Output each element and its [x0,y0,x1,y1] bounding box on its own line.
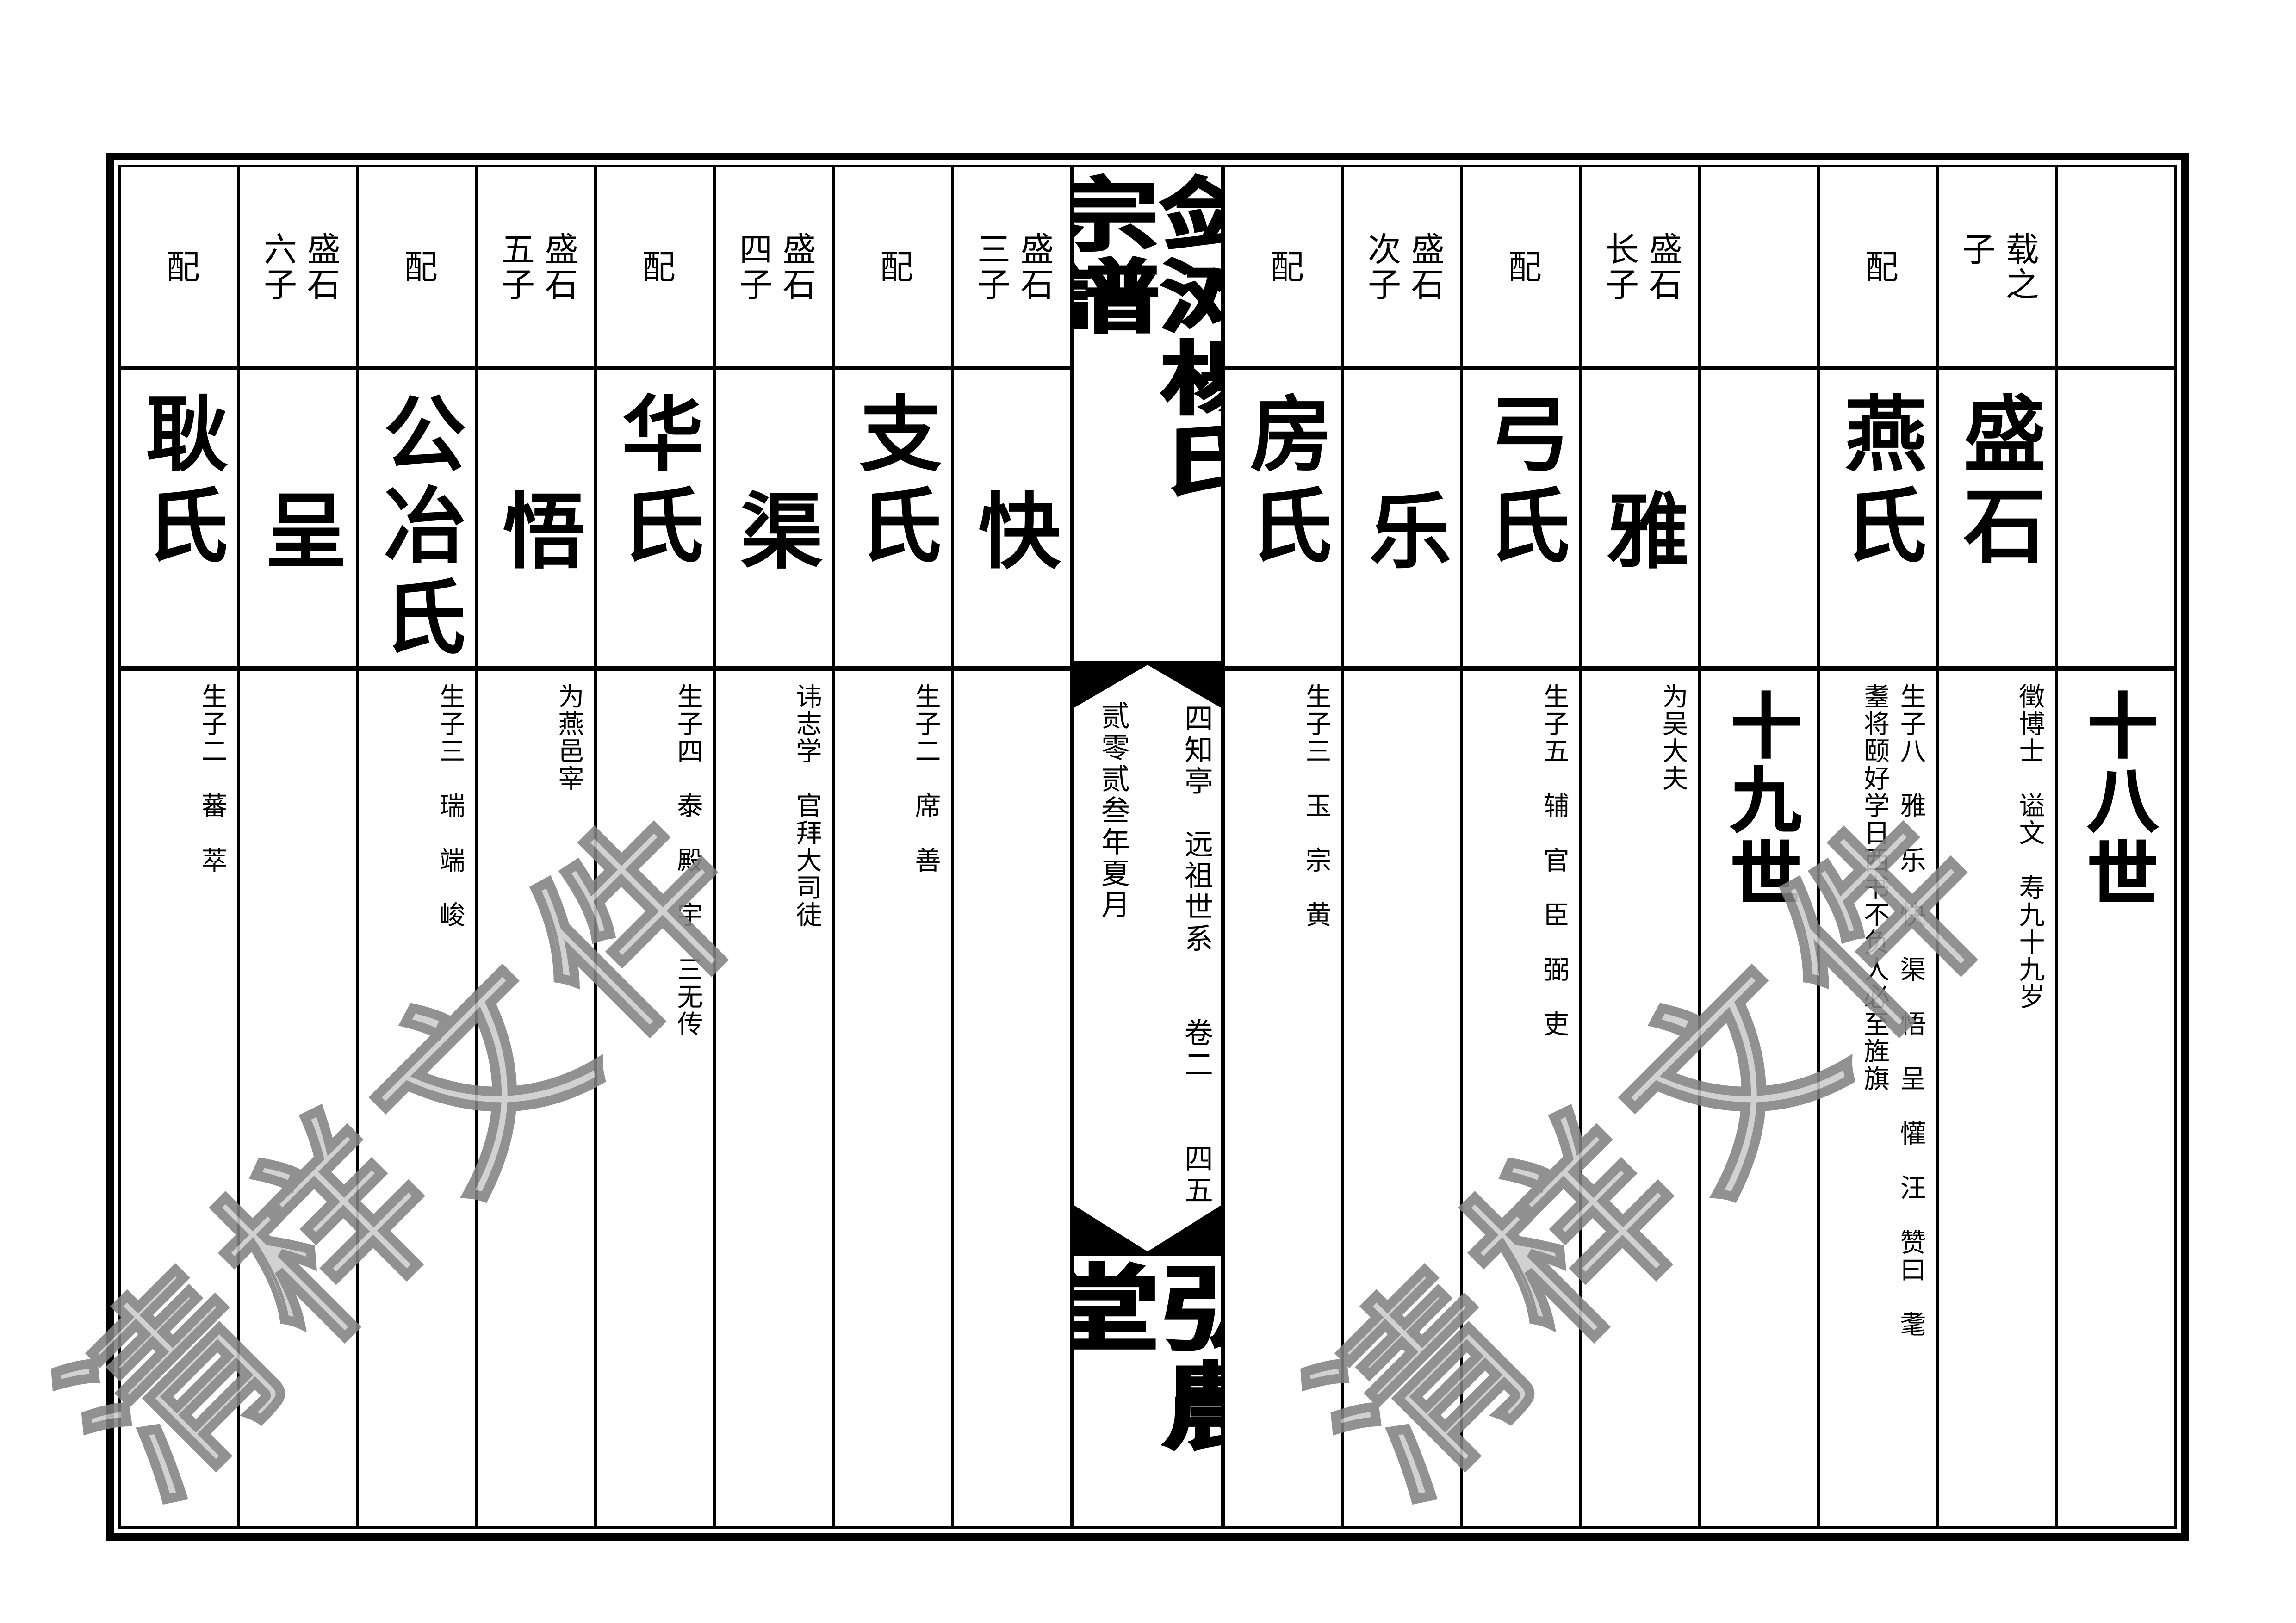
fishtail-lower-icon [1074,1205,1221,1256]
relation-header-label: 配 [633,249,677,285]
relation-header-label: 载之 子 [1954,232,2040,302]
page-border-outer: 配 耿氏 生子二 蕃 萃 盛石 六子 呈 配 公冶氏 生子三 瑞 端 峻 [106,153,2189,1541]
person-name: 渠 [731,370,817,580]
genealogy-title: 剑滩楊氏宗譜 [1074,167,1221,527]
person-name: 乐 [1359,370,1446,580]
person-name-cell: 华氏 [597,370,713,671]
person-name-cell: 盛石 [1939,370,2055,671]
biography-cell: 生子二 席 善 [835,671,951,1526]
spine-date-label: 贰零贰叁年夏月 [1098,701,1127,921]
relation-header-label: 配 [1500,249,1543,285]
relation-header-cell: 配 [1225,167,1341,370]
biography-cell: 生子三 玉 宗 黄 [1225,671,1341,1526]
person-name: 耿氏 [136,370,223,574]
biography-text: 生子二 席 善 [907,683,943,874]
relation-header-label: 盛石 次子 [1359,232,1446,302]
column-grid: 配 耿氏 生子二 蕃 萃 盛石 六子 呈 配 公冶氏 生子三 瑞 端 峻 [121,167,2174,1526]
person-name: 弓氏 [1478,370,1564,574]
person-name: 燕氏 [1835,370,1921,574]
spine-section-label: 四知亭 远祖世系 卷二 四五 [1181,703,1210,1207]
biography-cell: 徵博士 谥文 寿九十九岁 [1939,671,2055,1526]
relation-header-cell [2058,167,2174,370]
person-name: 快 [968,370,1055,580]
relation-header-cell: 盛石 长子 [1582,167,1698,370]
person-name-cell [1701,370,1817,671]
biography-cell: 生子八 雅 乐 快 渠 悟 呈 懽 汪 赞曰 耄 耋将颐好学日西书不负人必至旌旗 [1820,671,1936,1526]
relation-header-cell: 载之 子 [1939,167,2055,370]
column-11: 配 弓氏 生子五 辅 官 臣 弼 吏 [1463,167,1582,1526]
relation-header-label: 盛石 六子 [255,232,341,302]
person-name: 支氏 [850,370,936,574]
biography-cell: 十八世 [2058,671,2174,1526]
relation-header-cell: 盛石 三子 [954,167,1070,370]
person-name-cell: 弓氏 [1463,370,1579,671]
biography-cell: 生子二 蕃 萃 [121,671,237,1526]
column-15: 载之 子 盛石 徵博士 谥文 寿九十九岁 [1939,167,2058,1526]
genealogy-title-block: 剑滩楊氏宗譜 [1074,167,1221,661]
person-name-cell: 耿氏 [121,370,237,671]
biography-text: 生子八 雅 乐 快 渠 悟 呈 懽 汪 赞曰 耄 耋将颐好学日西书不负人必至旌旗 [1856,683,1929,1338]
person-name: 华氏 [612,370,698,574]
column-14: 配 燕氏 生子八 雅 乐 快 渠 悟 呈 懽 汪 赞曰 耄 耋将颐好学日西书不负… [1820,167,1939,1526]
column-3: 配 公冶氏 生子三 瑞 端 峻 [359,167,478,1526]
column-8: 盛石 三子 快 [954,167,1074,1526]
genealogy-page: 配 耿氏 生子二 蕃 萃 盛石 六子 呈 配 公冶氏 生子三 瑞 端 峻 [0,0,2296,1623]
relation-header-cell: 盛石 五子 [478,167,594,370]
biography-cell: 为燕邑宰 [478,671,594,1526]
column-1: 配 耿氏 生子二 蕃 萃 [121,167,240,1526]
relation-header-cell: 盛石 四子 [716,167,832,370]
biography-text: 讳志学 官拜大司徒 [788,683,825,929]
relation-header-cell: 配 [1463,167,1579,370]
person-name-cell: 雅 [1582,370,1698,671]
person-name: 盛石 [1954,370,2040,574]
relation-header-cell: 配 [597,167,713,370]
person-name-cell: 悟 [478,370,594,671]
person-name: 公冶氏 [374,370,460,666]
hall-name-block: 弘農堂 [1074,1260,1221,1526]
relation-header-label: 配 [396,249,439,285]
biography-text: 徵博士 谥文 寿九十九岁 [2011,683,2048,1010]
person-name-cell: 支氏 [835,370,951,671]
fishtail-upper-icon [1074,661,1221,708]
relation-header-cell: 盛石 次子 [1344,167,1460,370]
relation-header-label: 配 [1856,249,1900,285]
person-name-cell: 渠 [716,370,832,671]
biography-cell [1344,671,1460,1526]
biography-cell: 讳志学 官拜大司徒 [716,671,832,1526]
biography-cell: 为吴大夫 [1582,671,1698,1526]
relation-header-label: 盛石 四子 [731,232,817,302]
column-7: 配 支氏 生子二 席 善 [835,167,954,1526]
relation-header-label: 盛石 长子 [1597,232,1683,302]
person-name-cell: 房氏 [1225,370,1341,671]
biography-cell [240,671,356,1526]
person-name-cell: 燕氏 [1820,370,1936,671]
person-name-cell: 公冶氏 [359,370,475,671]
column-13: 十九世 [1701,167,1820,1526]
page-border-inner: 配 耿氏 生子二 蕃 萃 盛石 六子 呈 配 公冶氏 生子三 瑞 端 峻 [118,165,2177,1529]
biography-text: 生子四 泰 殿 宇 三无传 [670,683,706,1038]
biography-cell: 生子五 辅 官 臣 弼 吏 [1463,671,1579,1526]
biography-text: 生子三 瑞 端 峻 [432,683,468,929]
person-name: 悟 [493,370,579,580]
relation-header-cell: 配 [359,167,475,370]
biography-text: 生子三 玉 宗 黄 [1298,683,1334,929]
relation-header-label: 盛石 五子 [493,232,579,302]
biography-text: 为吴大夫 [1655,683,1691,792]
person-name-cell: 呈 [240,370,356,671]
relation-header-label: 配 [871,249,915,285]
column-6: 盛石 四子 渠 讳志学 官拜大司徒 [716,167,835,1526]
spine-column: 剑滩楊氏宗譜 四知亭 远祖世系 卷二 四五 贰零贰叁年夏月 弘農堂 [1074,167,1225,1526]
column-16: 十八世 [2058,167,2174,1526]
relation-header-cell [1701,167,1817,370]
column-5: 配 华氏 生子四 泰 殿 宇 三无传 [597,167,716,1526]
biography-text: 为燕邑宰 [551,683,587,792]
biography-cell: 十九世 [1701,671,1817,1526]
biography-cell: 生子四 泰 殿 宇 三无传 [597,671,713,1526]
column-4: 盛石 五子 悟 为燕邑宰 [478,167,597,1526]
hall-name: 弘農堂 [1074,1260,1221,1459]
relation-header-cell: 配 [835,167,951,370]
person-name-cell: 乐 [1344,370,1460,671]
person-name: 雅 [1597,370,1683,580]
relation-header-cell: 盛石 六子 [240,167,356,370]
person-name-cell: 快 [954,370,1070,671]
biography-text: 生子二 蕃 萃 [194,683,230,874]
column-9: 配 房氏 生子三 玉 宗 黄 [1225,167,1344,1526]
column-12: 盛石 长子 雅 为吴大夫 [1582,167,1701,1526]
column-2: 盛石 六子 呈 [240,167,359,1526]
generation-label: 十九世 [1708,689,1810,911]
relation-header-label: 盛石 三子 [968,232,1055,302]
biography-cell: 生子三 瑞 端 峻 [359,671,475,1526]
column-10: 盛石 次子 乐 [1344,167,1463,1526]
relation-header-label: 配 [1262,249,1305,285]
relation-header-cell: 配 [1820,167,1936,370]
relation-header-label: 配 [158,249,201,285]
generation-label: 十八世 [2065,689,2167,911]
biography-cell [954,671,1070,1526]
biography-text: 生子五 辅 官 臣 弼 吏 [1536,683,1572,1038]
person-name: 呈 [255,370,341,580]
person-name-cell [2058,370,2174,671]
person-name: 房氏 [1240,370,1327,574]
relation-header-cell: 配 [121,167,237,370]
